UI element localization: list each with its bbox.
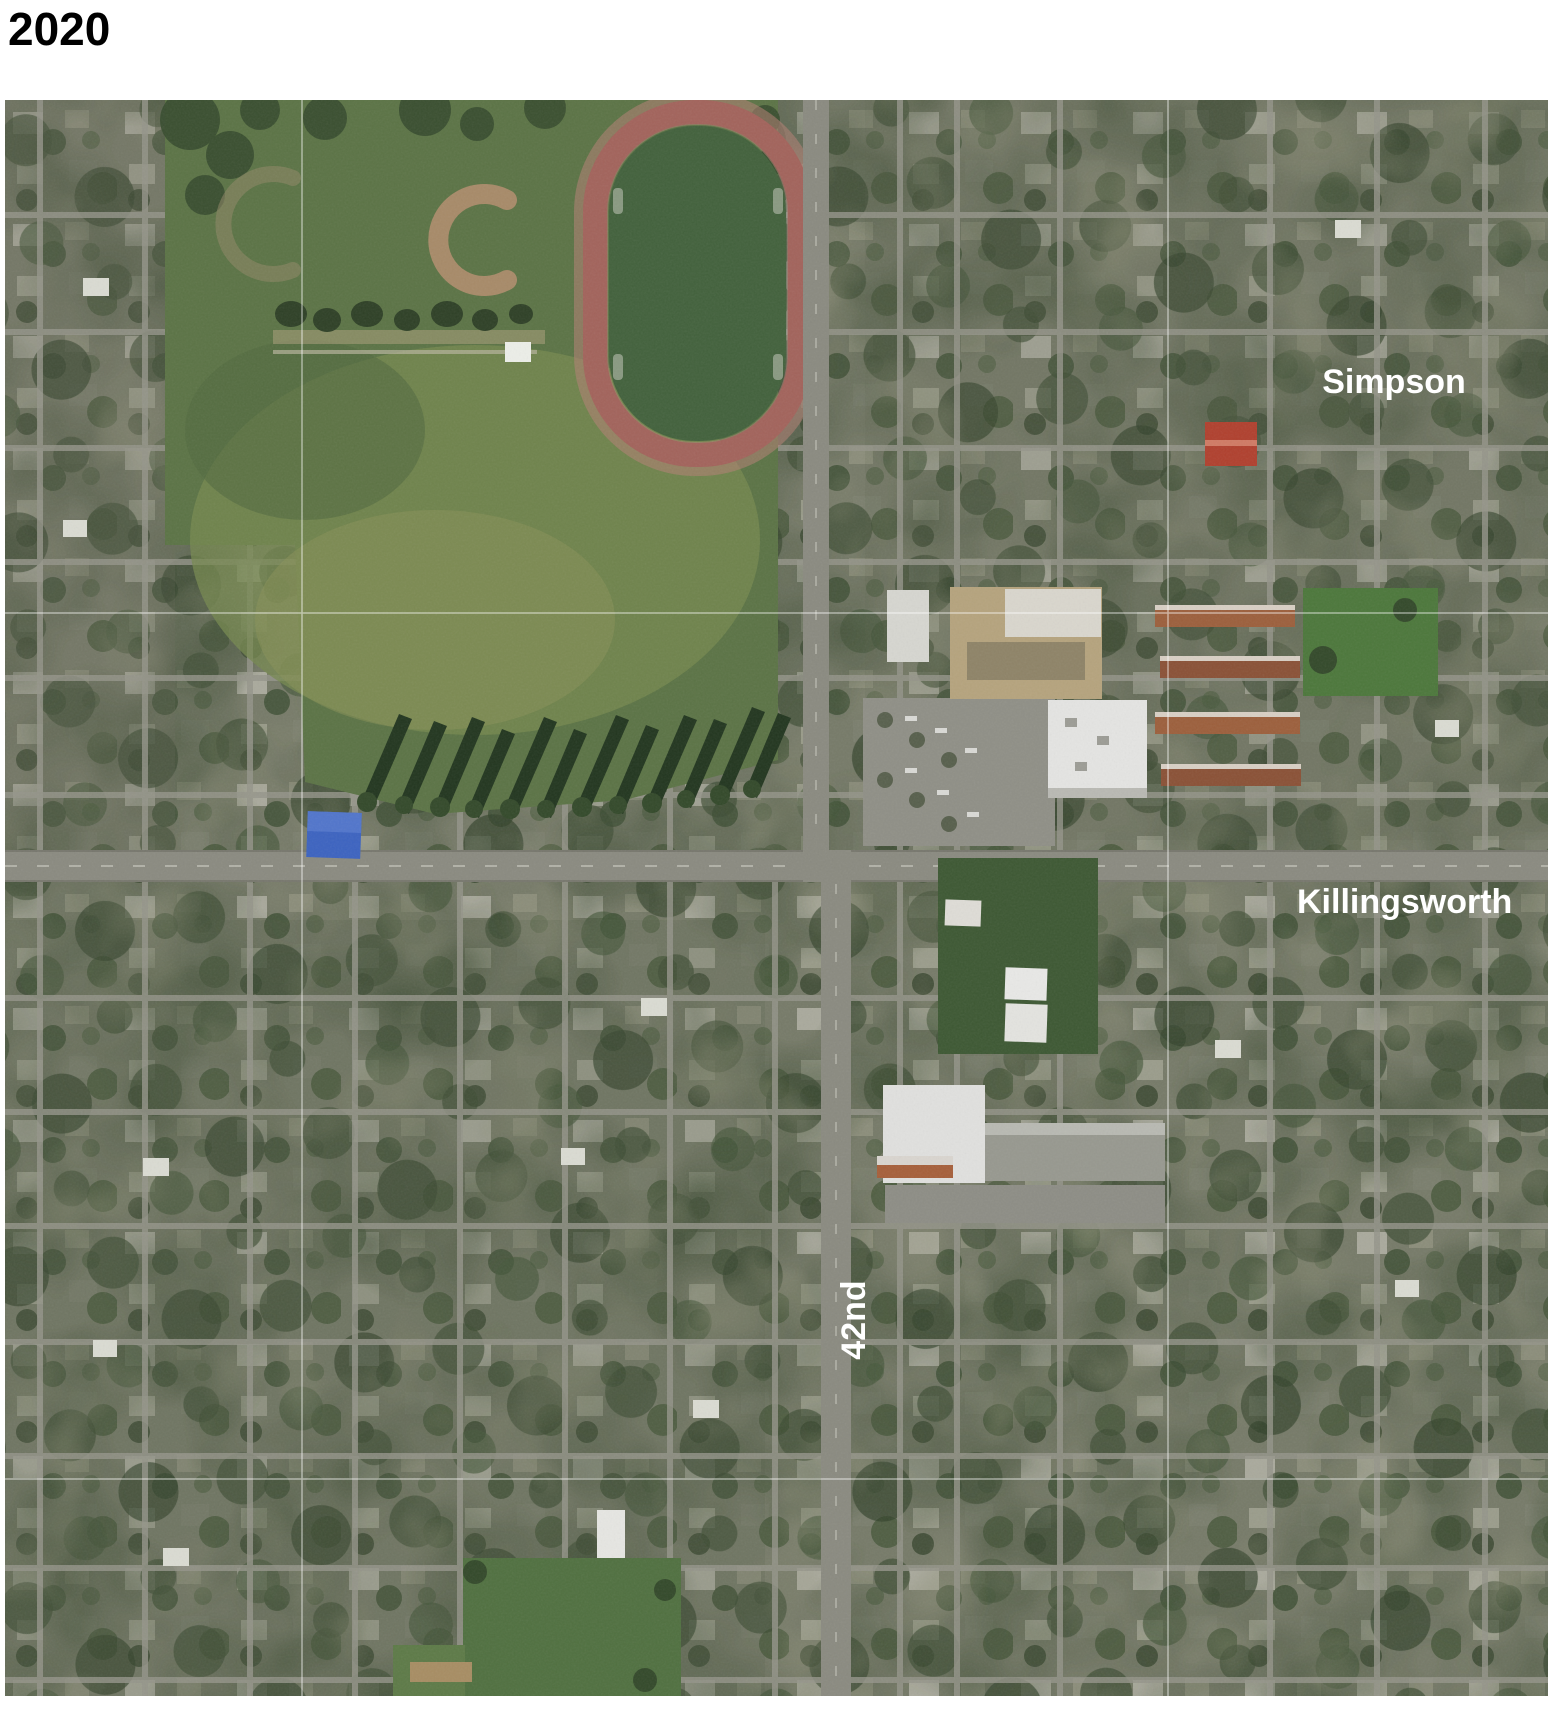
aerial-image: Simpson Killingsworth 42nd: [5, 100, 1548, 1696]
label-killingsworth: Killingsworth: [1297, 883, 1512, 921]
label-42nd: 42nd: [835, 1280, 873, 1359]
label-simpson: Simpson: [1322, 363, 1466, 401]
satellite-map: Simpson Killingsworth 42nd: [5, 100, 1548, 1696]
year-title: 2020: [8, 2, 110, 56]
